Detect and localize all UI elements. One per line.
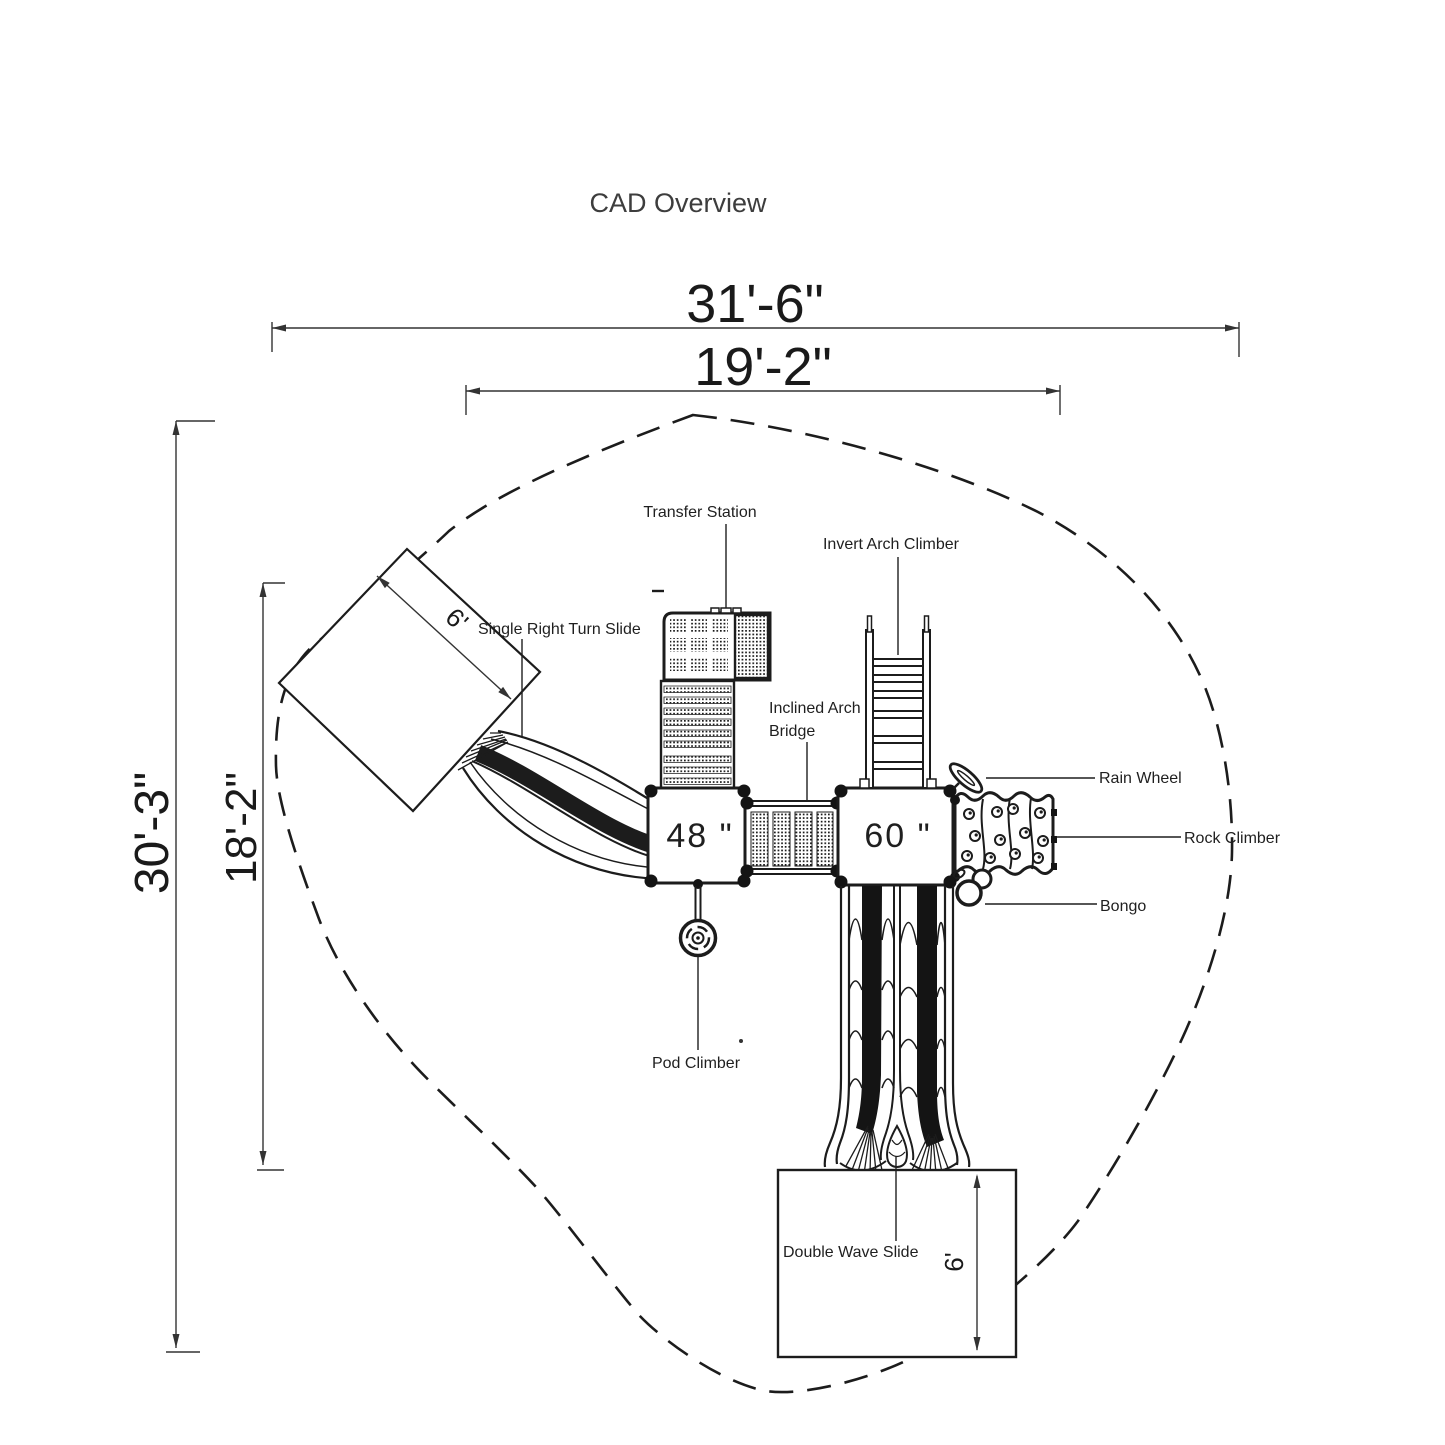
label-bongo: Bongo <box>1100 898 1146 915</box>
rock-hold <box>1010 849 1020 859</box>
label-rain-wheel: Rain Wheel <box>1099 770 1182 787</box>
deck-60: 60 " <box>835 785 957 889</box>
corner-post <box>645 785 658 798</box>
corner-post <box>738 785 751 798</box>
single-right-turn-slide <box>458 731 660 879</box>
transfer-station <box>661 608 770 788</box>
bridge-tread-panels <box>751 812 833 866</box>
cad-drawing: 6' 48 " <box>0 0 1445 1445</box>
label-inclined-arch-bridge-line1: Inclined Arch <box>769 700 861 717</box>
corner-post <box>741 865 754 878</box>
dim-text-deck-span-width: 19'-2" <box>694 337 832 397</box>
label-rock-climber: Rock Climber <box>1184 830 1281 847</box>
rock-hold <box>1020 828 1030 838</box>
dim-arrow <box>260 583 267 597</box>
double-wave-slide <box>825 886 970 1175</box>
rock-hold <box>1035 808 1045 818</box>
climber-foot <box>860 779 869 788</box>
slide-inner-bottom <box>470 762 660 868</box>
transfer-station-platform <box>735 615 768 678</box>
page-title: CAD Overview <box>589 188 767 218</box>
label-pod-climber: Pod Climber <box>652 1055 741 1072</box>
climber-rungs <box>873 659 923 769</box>
dim-arrow <box>1225 325 1239 332</box>
dim-text-overall-width: 31'-6" <box>686 274 824 334</box>
label-double-wave-slide: Double Wave Slide <box>783 1244 919 1261</box>
rock-hold <box>992 807 1002 817</box>
label-inclined-arch-bridge-line2: Bridge <box>769 723 815 740</box>
corner-post <box>835 785 848 798</box>
rock-hold <box>964 809 974 819</box>
rock-hold <box>1008 804 1018 814</box>
transfer-stairs-steps <box>664 686 731 785</box>
corner-post <box>645 875 658 888</box>
deck-48: 48 " <box>645 785 751 888</box>
rock-hold <box>1038 836 1048 846</box>
dws-center-pod <box>887 1126 907 1167</box>
dws-bedway-left <box>856 886 882 1134</box>
dimension-overall-depth: 30'-3" <box>126 421 215 1352</box>
rock-hold <box>970 831 980 841</box>
dimension-deck-span-width: 19'-2" <box>466 337 1060 415</box>
dim-text-overall-depth: 30'-3" <box>126 772 179 894</box>
climber-rail-right <box>923 630 930 788</box>
dim-arrow <box>260 1151 267 1165</box>
inclined-arch-bridge <box>741 797 844 878</box>
slide-outer-bottom <box>463 768 660 879</box>
dim-arrow <box>173 421 180 435</box>
rock-hold <box>985 853 995 863</box>
dim-text-6ft-bottom: 6' <box>939 1252 969 1271</box>
rock-climber <box>950 793 1057 882</box>
dws-outer-rail-left <box>825 886 849 1167</box>
label-invert-arch-climber: Invert Arch Climber <box>823 536 960 553</box>
climber-rail-cap <box>925 616 929 632</box>
dws-center-divider <box>881 886 914 1160</box>
rock-hold <box>995 835 1005 845</box>
deck-48-height-label: 48 " <box>666 817 733 855</box>
dim-text-deck-span-depth: 18'-2" <box>217 772 266 884</box>
bongo-post <box>946 876 956 886</box>
transfer-station-roof-tabs <box>711 608 741 613</box>
rain-wheel <box>946 760 986 797</box>
label-single-right-turn-slide: Single Right Turn Slide <box>478 621 641 638</box>
bottom-slide-exit-zone <box>778 1170 1016 1357</box>
dim-arrow <box>272 325 286 332</box>
climber-rail-cap <box>868 616 872 632</box>
stray-dot <box>739 1039 743 1043</box>
climber-rail-left <box>866 630 873 788</box>
label-transfer-station: Transfer Station <box>643 504 756 521</box>
climber-foot <box>927 779 936 788</box>
bongo-drum-large <box>957 881 981 905</box>
dws-outer-rail-right <box>945 886 969 1167</box>
pod-center <box>696 936 700 940</box>
dimension-deck-span-depth: 18'-2" <box>217 583 285 1170</box>
deck-60-height-label: 60 " <box>864 817 931 855</box>
rock-hold <box>1033 853 1043 863</box>
pod-climber <box>681 879 716 956</box>
dim-arrow <box>1046 388 1060 395</box>
rock-hold <box>962 851 972 861</box>
dim-arrow <box>173 1334 180 1348</box>
dim-arrow <box>466 388 480 395</box>
rain-wheel-post <box>946 787 955 796</box>
transfer-station-deck-texture <box>670 619 728 671</box>
corner-post <box>741 797 754 810</box>
rock-climber-post <box>950 795 960 805</box>
